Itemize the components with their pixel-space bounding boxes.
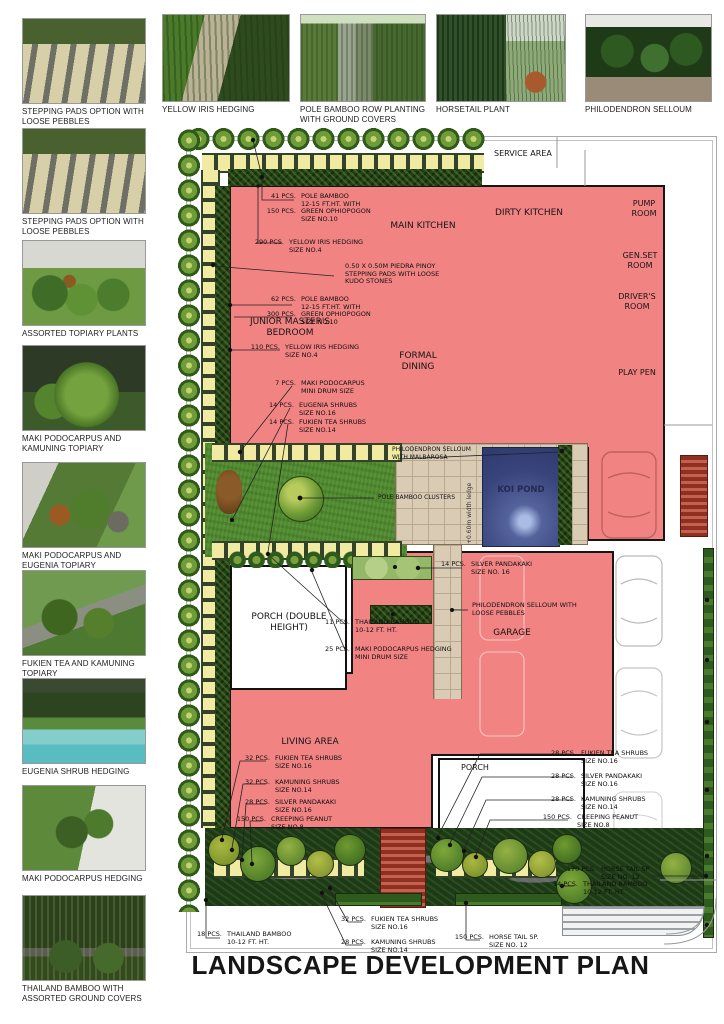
label-genset-room: GEN.SET ROOM — [618, 251, 662, 271]
gallery-item: THAILAND BAMBOO WITH ASSORTED GROUND COV… — [22, 895, 148, 1003]
note-qty: 18 PCS. — [178, 931, 227, 939]
note-text: SIZE NO.16 — [299, 410, 336, 418]
note-qty: 41 PCS. — [252, 193, 301, 201]
note-text: LOOSE PEBBLES — [472, 610, 525, 618]
sheet-title: LANDSCAPE DEVELOPMENT PLAN — [168, 950, 673, 981]
note-qty — [226, 763, 275, 771]
note-qty: 150 PCS. — [252, 208, 301, 216]
pond-hedge-strip — [558, 445, 572, 545]
driveway-entry — [562, 906, 704, 936]
label-formal-dining: FORMAL DINING — [388, 351, 448, 373]
photo-eugenia-hedging — [22, 678, 146, 764]
note-row: 10-12 FT. HT. — [306, 627, 419, 635]
note-qty: 150 PCS. — [222, 816, 271, 824]
label-main-kitchen: MAIN KITCHEN — [378, 221, 468, 232]
shrub — [276, 836, 306, 866]
note-qty — [250, 427, 299, 435]
photo-fukien-kamuning — [22, 570, 146, 656]
gallery-item: PHILODENDRON SELLOUM — [585, 14, 715, 115]
plant-note: 25 PCS.MAKI PODOCARPUS HEDGINGMINI DRUM … — [306, 646, 452, 661]
gallery-item: HORSETAIL PLANT — [436, 14, 568, 115]
gallery-item: STEPPING PADS OPTION WITH LOOSE PEBBLES — [22, 128, 148, 236]
note-text: POLE BAMBOO CLUSTERS — [378, 494, 455, 502]
note-text: SIZE NO.10 — [301, 319, 338, 327]
stepping-pads-row — [212, 443, 402, 462]
note-qty: 32 PCS. — [226, 779, 275, 787]
photo-caption: YELLOW IRIS HEDGING — [162, 105, 292, 115]
shrub — [552, 834, 582, 864]
plant-note: 14 PCS.EUGENIA SHRUBSSIZE NO.16 — [250, 402, 357, 417]
note-qty — [296, 271, 345, 279]
tree-border-top — [186, 126, 486, 154]
note-text: 10-12 FT. HT. — [227, 939, 269, 947]
photo-stepping-pads-1 — [22, 18, 146, 104]
label-koi-pond: KOI POND — [492, 485, 550, 496]
note-text: 10-12 FT. HT. — [355, 627, 397, 635]
gallery-item: POLE BAMBOO ROW PLANTING WITH GROUND COV… — [300, 14, 428, 124]
plant-note: 14 PCS.FUKIEN TEA SHRUBSSIZE NO.14 — [250, 419, 366, 434]
note-qty: 110 PCS. — [236, 344, 285, 352]
hedge-bar — [335, 893, 422, 906]
car-icon — [616, 668, 662, 758]
shrub — [430, 838, 464, 872]
note-qty — [440, 942, 489, 950]
note-row: SIZE NO.16 — [226, 763, 342, 771]
gallery-item: MAKI PODOCARPUS HEDGING — [22, 785, 148, 884]
car-icon — [616, 556, 662, 646]
photo-caption: THAILAND BAMBOO WITH ASSORTED GROUND COV… — [22, 984, 148, 1003]
plant-note: 32 PCS.KAMUNING SHRUBSSIZE NO.14 — [226, 779, 339, 794]
photo-stepping-pads-2 — [22, 128, 146, 214]
note-qty — [236, 352, 285, 360]
plant-note: 150 PCS.CREEPING PEANUTSIZE NO.8 — [222, 816, 332, 831]
car-icon — [480, 556, 524, 736]
note-text: SIZE NO.10 — [301, 216, 338, 224]
photo-caption: STEPPING PADS OPTION WITH LOOSE PEBBLES — [22, 217, 148, 236]
gallery-item: FUKIEN TEA AND KAMUNING TOPIARY — [22, 570, 148, 678]
note-qty: 32 PCS. — [322, 916, 371, 924]
photo-caption: MAKI PODOCARPUS AND EUGENIA TOPIARY — [22, 551, 148, 570]
plant-note: 28 PCS.FUKIEN TEA SHRUBSSIZE NO.16 — [532, 750, 648, 765]
note-qty: 11 PCS. — [306, 619, 355, 627]
note-qty — [222, 824, 271, 832]
plant-note: 18 PCS.THAILAND BAMBOO10-12 FT. HT. — [178, 931, 291, 946]
note-row: MINI DRUM SIZE — [252, 388, 365, 396]
note-text: SIZE NO. 12 — [489, 942, 528, 950]
note-row: SIZE NO. 12 — [440, 942, 538, 950]
note-qty: 170 PCS. — [552, 866, 601, 874]
photo-caption: PHILODENDRON SELLOUM — [585, 105, 715, 115]
gallery-item: MAKI PODOCARPUS AND KAMUNING TOPIARY — [22, 345, 148, 453]
note-qty — [306, 654, 355, 662]
plant-note: PHILODENDRON SELLOUMWITH MALBAROSA — [392, 446, 471, 461]
note-text: PHILODENDRON SELLOUM — [392, 446, 471, 454]
note-text: SIZE NO.16 — [275, 763, 312, 771]
note-text: SIZE NO.16 — [275, 807, 312, 815]
plant-note: 28 PCS.SILVER PANDAKAKISIZE NO.16 — [226, 799, 336, 814]
photo-caption: ASSORTED TOPIARY PLANTS — [22, 329, 148, 339]
gallery-item: YELLOW IRIS HEDGING — [162, 14, 292, 115]
plant-note: 32 PCS.FUKIEN TEA SHRUBSSIZE NO.16 — [322, 916, 438, 931]
note-text: SIZE NO.14 — [275, 787, 312, 795]
photo-assorted-topiary — [22, 240, 146, 326]
note-qty — [322, 924, 371, 932]
note-qty: 28 PCS. — [226, 799, 275, 807]
note-qty — [296, 278, 345, 286]
plant-note: 11 PCS.THAILAND BAMBOO10-12 FT. HT. — [306, 619, 419, 634]
note-qty: 14 PCS. — [422, 561, 471, 569]
note-qty — [528, 822, 577, 830]
note-row: SIZE NO.8 — [222, 824, 332, 832]
note-row: KUDO STONES — [296, 278, 439, 286]
photo-caption: STEPPING PADS OPTION WITH LOOSE PEBBLES — [22, 107, 148, 126]
note-text: SIZE NO.14 — [581, 804, 618, 812]
photo-caption: POLE BAMBOO ROW PLANTING WITH GROUND COV… — [300, 105, 428, 124]
tree-border-left — [176, 128, 202, 912]
plant-note: 150 PCS.CREEPING PEANUTSIZE NO.8 — [528, 814, 638, 829]
note-qty — [250, 410, 299, 418]
note-text: MINI DRUM SIZE — [301, 388, 354, 396]
label-ledge-width: +0.60m width ledge — [466, 462, 473, 544]
note-qty: 32 PCS. — [226, 755, 275, 763]
plant-note: 0.50 X 0.50M PIEDRA PINOYSTEPPING PADS W… — [296, 263, 439, 286]
note-qty: 300 PCS. — [252, 311, 301, 319]
gallery-item: EUGENIA SHRUB HEDGING — [22, 678, 148, 777]
shrub — [334, 834, 366, 866]
note-qty — [534, 889, 583, 897]
note-row: PHILODENDRON SELLOUM — [392, 446, 471, 454]
plant-note: 28 PCS.SILVER PANDAKAKISIZE NO.16 — [532, 773, 642, 788]
note-qty: 28 PCS. — [532, 796, 581, 804]
plant-note: 41 PCS.POLE BAMBOO12-15 FT.HT. WITH150 P… — [252, 193, 371, 223]
photo-caption: FUKIEN TEA AND KAMUNING TOPIARY — [22, 659, 148, 678]
plant-note: 62 PCS.POLE BAMBOO12-15 FT.HT. WITH300 P… — [252, 296, 371, 326]
note-text: SIZE NO.14 — [299, 427, 336, 435]
gallery-item: MAKI PODOCARPUS AND EUGENIA TOPIARY — [22, 462, 148, 570]
note-qty: 14 PCS. — [534, 881, 583, 889]
note-qty — [178, 939, 227, 947]
tree-canopy — [278, 476, 324, 522]
plant-note: 150 PCS.HORSE TAIL SP.SIZE NO. 12 — [440, 934, 538, 949]
note-text: MINI DRUM SIZE — [355, 654, 408, 662]
note-row: LOOSE PEBBLES — [472, 610, 577, 618]
note-row: 10-12 FT. HT. — [534, 889, 647, 897]
note-qty: 7 PCS. — [252, 380, 301, 388]
plant-note: POLE BAMBOO CLUSTERS — [378, 494, 455, 502]
note-text: WITH MALBAROSA — [392, 454, 448, 462]
note-text: SIZE NO.8 — [271, 824, 304, 832]
note-qty: 14 PCS. — [250, 402, 299, 410]
note-row: 10-12 FT. HT. — [178, 939, 291, 947]
note-qty — [240, 247, 289, 255]
plant-note: 14 PCS.SILVER PANDAKAKISIZE NO. 16 — [422, 561, 532, 576]
note-row: SIZE NO.16 — [226, 807, 336, 815]
note-row: MINI DRUM SIZE — [306, 654, 452, 662]
note-text: 10-12 FT. HT. — [583, 889, 625, 897]
note-row: SIZE NO.16 — [322, 924, 438, 932]
note-row: SIZE NO.4 — [236, 352, 359, 360]
porch-hedge-row — [228, 548, 352, 568]
shrub — [208, 834, 240, 866]
horsetail-strip-right — [703, 548, 714, 938]
note-row: SIZE NO.14 — [250, 427, 366, 435]
note-text: SIZE NO.16 — [581, 758, 618, 766]
gallery-item: ASSORTED TOPIARY PLANTS — [22, 240, 148, 339]
label-play-pen: PLAY PEN — [612, 368, 662, 378]
note-row: WITH MALBAROSA — [392, 454, 471, 462]
note-qty — [252, 319, 301, 327]
plant-note: 7 PCS.MAKI PODOCARPUSMINI DRUM SIZE — [252, 380, 365, 395]
plant-note: 110 PCS.YELLOW IRIS HEDGINGSIZE NO.4 — [236, 344, 359, 359]
photo-philodendron — [585, 14, 712, 102]
photo-caption: EUGENIA SHRUB HEDGING — [22, 767, 148, 777]
note-row: SIZE NO.10 — [252, 319, 371, 327]
car-icon — [602, 452, 656, 538]
shrub — [240, 846, 276, 882]
photo-caption: HORSETAIL PLANT — [436, 105, 568, 115]
note-text: SIZE NO.8 — [577, 822, 610, 830]
note-text: SIZE NO.16 — [581, 781, 618, 789]
note-qty — [252, 388, 301, 396]
shrub — [492, 838, 528, 874]
note-row: SIZE NO.4 — [240, 247, 363, 255]
note-qty: 25 PCS. — [306, 646, 355, 654]
note-qty — [296, 263, 345, 271]
note-qty: 14 PCS. — [250, 419, 299, 427]
note-qty — [306, 627, 355, 635]
label-porch: PORCH — [452, 763, 498, 773]
label-pump-room: PUMP ROOM — [626, 199, 662, 219]
note-row: SIZE NO.16 — [532, 758, 648, 766]
plant-note: 170 PCS.HORSE TAIL SPSIZE NO. 12 — [552, 866, 649, 881]
note-qty — [422, 569, 471, 577]
plant-note: 290 PCS.YELLOW IRIS HEDGINGSIZE NO.4 — [240, 239, 363, 254]
note-row: SIZE NO.16 — [250, 410, 357, 418]
note-qty — [532, 804, 581, 812]
label-living-area: LIVING AREA — [272, 737, 348, 748]
note-text: KUDO STONES — [345, 278, 392, 286]
photo-maki-hedging — [22, 785, 146, 871]
plant-note: 14 PCS.THAILAND BAMBOO10-12 FT. HT. — [534, 881, 647, 896]
note-qty: 150 PCS. — [440, 934, 489, 942]
rock-feature — [216, 470, 242, 514]
note-qty — [252, 216, 301, 224]
note-row: SIZE NO.14 — [226, 787, 339, 795]
label-dirty-kitchen: DIRTY KITCHEN — [486, 208, 572, 219]
note-text: SIZE NO.4 — [285, 352, 318, 360]
gallery-item: STEPPING PADS OPTION WITH LOOSE PEBBLES — [22, 18, 148, 126]
label-garage: GARAGE — [482, 628, 542, 639]
note-row: SIZE NO. 16 — [422, 569, 532, 577]
note-qty — [226, 787, 275, 795]
note-text: SIZE NO. 16 — [471, 569, 510, 577]
plant-note: PHILODENDRON SELLOUM WITHLOOSE PEBBLES — [472, 602, 577, 617]
plant-note: 28 PCS.KAMUNING SHRUBSSIZE NO.14 — [532, 796, 645, 811]
note-qty: 28 PCS. — [532, 773, 581, 781]
label-drivers-room: DRIVER'S ROOM — [612, 292, 662, 312]
photo-thailand-bamboo — [22, 895, 146, 981]
note-row: POLE BAMBOO CLUSTERS — [378, 494, 455, 502]
photo-caption: MAKI PODOCARPUS HEDGING — [22, 874, 148, 884]
note-row: SIZE NO.16 — [532, 781, 642, 789]
note-qty: 62 PCS. — [252, 296, 301, 304]
shrub — [462, 852, 488, 878]
hedge-strip-top — [228, 169, 482, 186]
note-qty: 290 PCS. — [240, 239, 289, 247]
note-text: SIZE NO.16 — [371, 924, 408, 932]
note-row: SIZE NO.10 — [252, 216, 371, 224]
koi-pond — [482, 447, 560, 547]
note-qty: 28 PCS. — [532, 750, 581, 758]
note-qty — [532, 781, 581, 789]
photo-pole-bamboo — [300, 14, 426, 102]
shrub — [660, 852, 692, 884]
note-qty: 28 PCS. — [322, 939, 371, 947]
label-service-area: SERVICE AREA — [494, 149, 572, 159]
photo-maki-kamuning — [22, 345, 146, 431]
note-qty: 150 PCS. — [528, 814, 577, 822]
photo-caption: MAKI PODOCARPUS AND KAMUNING TOPIARY — [22, 434, 148, 453]
note-qty — [226, 807, 275, 815]
note-row: SIZE NO.8 — [528, 822, 638, 830]
plant-note: 32 PCS.FUKIEN TEA SHRUBSSIZE NO.16 — [226, 755, 342, 770]
note-qty — [532, 758, 581, 766]
note-text: SIZE NO.4 — [289, 247, 322, 255]
photo-maki-eugenia — [22, 462, 146, 548]
shrub — [306, 850, 334, 878]
note-row: SIZE NO.14 — [532, 804, 645, 812]
photo-yellow-iris — [162, 14, 290, 102]
hedge-light — [352, 556, 432, 580]
photo-horsetail — [436, 14, 566, 102]
brick-strip-garage — [680, 455, 708, 537]
